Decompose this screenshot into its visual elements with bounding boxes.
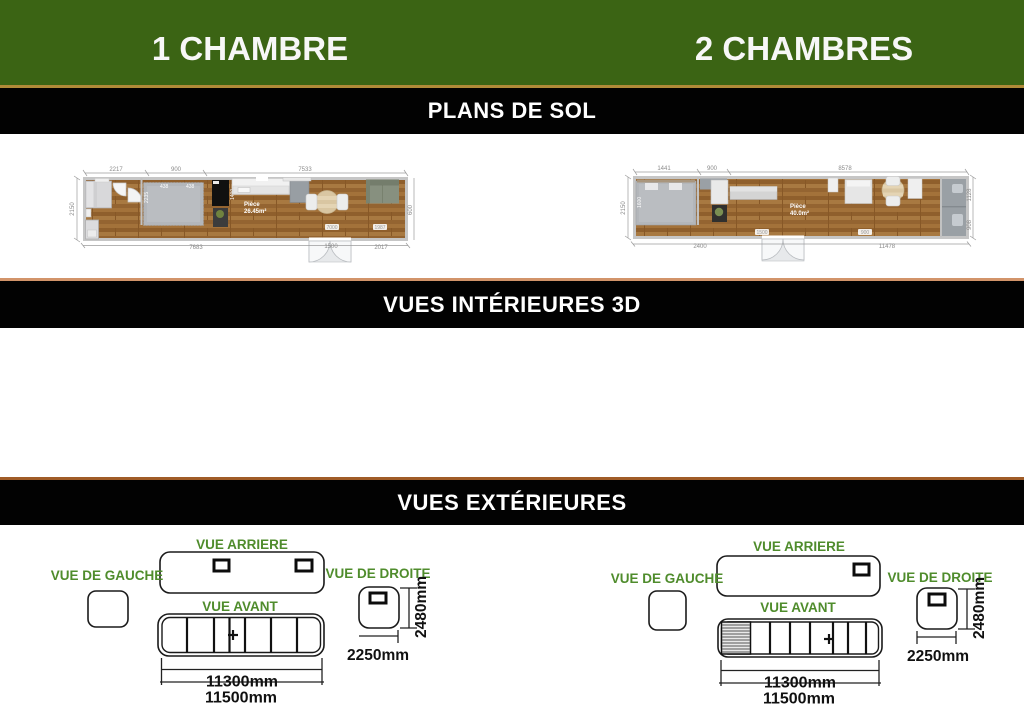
svg-text:11300mm: 11300mm <box>206 674 278 691</box>
svg-text:2150: 2150 <box>621 201 627 215</box>
svg-text:1500: 1500 <box>324 244 338 250</box>
svg-text:438: 438 <box>160 184 169 190</box>
svg-text:VUE ARRIERE: VUE ARRIERE <box>753 539 845 554</box>
svg-text:11300mm: 11300mm <box>764 675 836 692</box>
svg-text:7000: 7000 <box>326 225 337 231</box>
svg-text:11500mm: 11500mm <box>205 690 277 707</box>
svg-text:1441: 1441 <box>657 166 671 172</box>
svg-text:2250mm: 2250mm <box>347 647 409 664</box>
svg-text:VUE AVANT: VUE AVANT <box>202 599 278 614</box>
svg-text:908: 908 <box>967 219 973 230</box>
svg-text:2250mm: 2250mm <box>907 648 969 665</box>
svg-text:7683: 7683 <box>189 245 203 251</box>
svg-text:Pièce: Pièce <box>790 204 806 210</box>
svg-text:2017: 2017 <box>374 245 388 251</box>
svg-text:1500: 1500 <box>756 230 767 236</box>
svg-text:VUE DE GAUCHE: VUE DE GAUCHE <box>611 571 724 586</box>
svg-text:600: 600 <box>408 204 414 215</box>
svg-text:1600: 1600 <box>637 197 643 208</box>
svg-text:11478: 11478 <box>879 244 896 250</box>
svg-text:40.0m²: 40.0m² <box>790 210 809 217</box>
svg-text:VUE DE GAUCHE: VUE DE GAUCHE <box>51 568 164 583</box>
svg-text:VUE ARRIERE: VUE ARRIERE <box>196 537 288 552</box>
svg-text:900: 900 <box>171 167 182 173</box>
svg-text:2235: 2235 <box>144 192 150 203</box>
svg-text:2480mm: 2480mm <box>971 577 988 639</box>
svg-text:2217: 2217 <box>109 167 123 173</box>
svg-text:1128: 1128 <box>967 188 973 202</box>
svg-text:7533: 7533 <box>298 167 312 173</box>
svg-text:2150: 2150 <box>70 202 76 216</box>
svg-text:900: 900 <box>861 230 870 236</box>
svg-text:Pièce: Pièce <box>244 202 260 208</box>
svg-text:11500mm: 11500mm <box>763 691 835 708</box>
svg-text:26.45m²: 26.45m² <box>244 208 266 215</box>
svg-text:2400: 2400 <box>693 244 707 250</box>
svg-text:900: 900 <box>707 166 718 172</box>
svg-text:1987: 1987 <box>374 225 385 231</box>
svg-text:8578: 8578 <box>838 166 852 172</box>
svg-text:438: 438 <box>186 184 195 190</box>
svg-text:2480mm: 2480mm <box>413 576 430 638</box>
svg-text:VUE AVANT: VUE AVANT <box>760 600 836 615</box>
